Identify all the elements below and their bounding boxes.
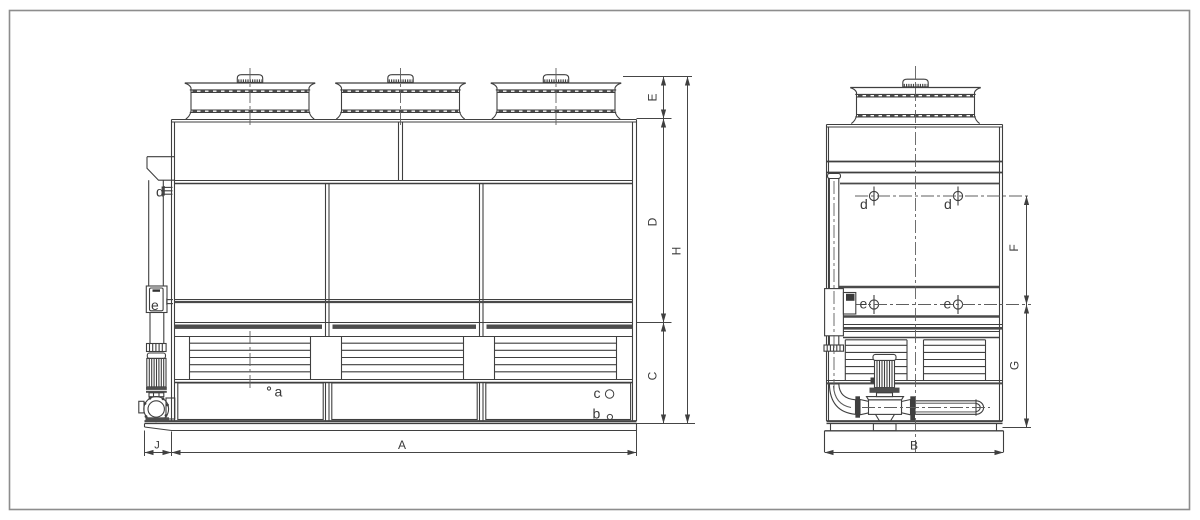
svg-text:b: b — [593, 406, 601, 422]
svg-text:e: e — [151, 297, 159, 313]
svg-text:c: c — [594, 385, 601, 401]
svg-text:B: B — [910, 439, 918, 453]
svg-text:d: d — [156, 184, 164, 200]
svg-text:J: J — [154, 440, 160, 452]
svg-text:G: G — [1008, 361, 1022, 370]
svg-text:D: D — [646, 217, 660, 226]
svg-text:d: d — [944, 196, 952, 212]
svg-text:d: d — [860, 196, 868, 212]
svg-text:a: a — [275, 384, 283, 400]
svg-text:H: H — [670, 247, 684, 256]
svg-text:e: e — [944, 296, 952, 312]
svg-text:A: A — [398, 438, 406, 452]
svg-text:F: F — [1007, 244, 1021, 251]
svg-text:C: C — [646, 371, 660, 380]
svg-text:e: e — [860, 296, 868, 312]
svg-text:E: E — [646, 93, 660, 101]
